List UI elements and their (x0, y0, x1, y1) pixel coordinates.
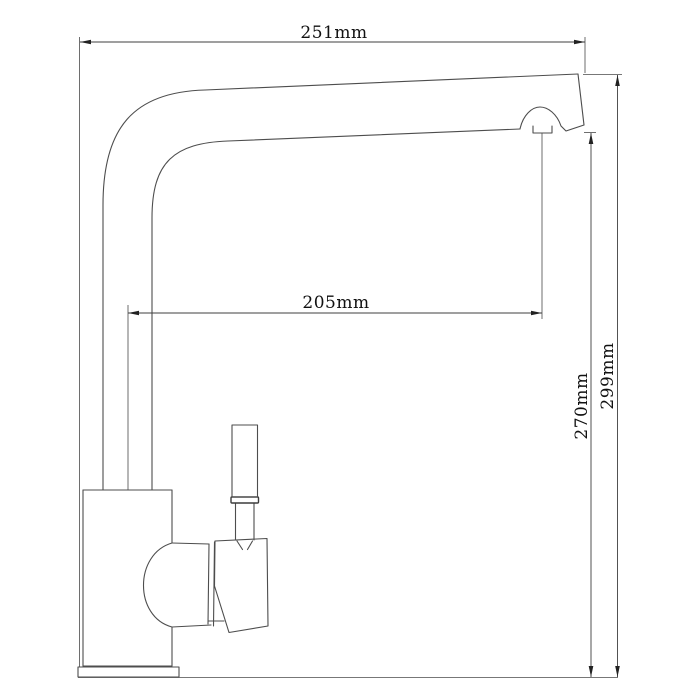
spout-tip-edge (578, 74, 584, 125)
handle-stem (236, 503, 255, 550)
handle-base (215, 539, 269, 633)
base-plate (78, 667, 179, 677)
dim-total-width-label: 251mm (300, 23, 367, 43)
cartridge-boss-arc (144, 543, 173, 627)
boss-bottom-line (172, 625, 211, 627)
boss-top-line (172, 543, 209, 544)
dim-spout-reach: 205mm (128, 293, 542, 313)
handle-collar (231, 497, 259, 503)
faucet-outline (78, 74, 584, 677)
dim-spout-reach-label: 205mm (302, 293, 369, 313)
dim-total-height: 299mm (598, 75, 618, 677)
dim-total-height-label: 299mm (598, 342, 618, 409)
dim-outlet-height: 270mm (572, 133, 592, 677)
handle-face-plate (208, 542, 215, 626)
drawing-canvas: 251mm 205mm 270mm 299mm (0, 0, 700, 700)
aerator-outlet (533, 126, 552, 133)
dim-total-width: 251mm (80, 23, 585, 43)
dim-outlet-height-label: 270mm (572, 372, 592, 439)
handle-grip (232, 425, 258, 497)
faucet-technical-drawing: 251mm 205mm 270mm 299mm (0, 0, 700, 700)
dimension-annotations: 251mm 205mm 270mm 299mm (78, 23, 622, 678)
